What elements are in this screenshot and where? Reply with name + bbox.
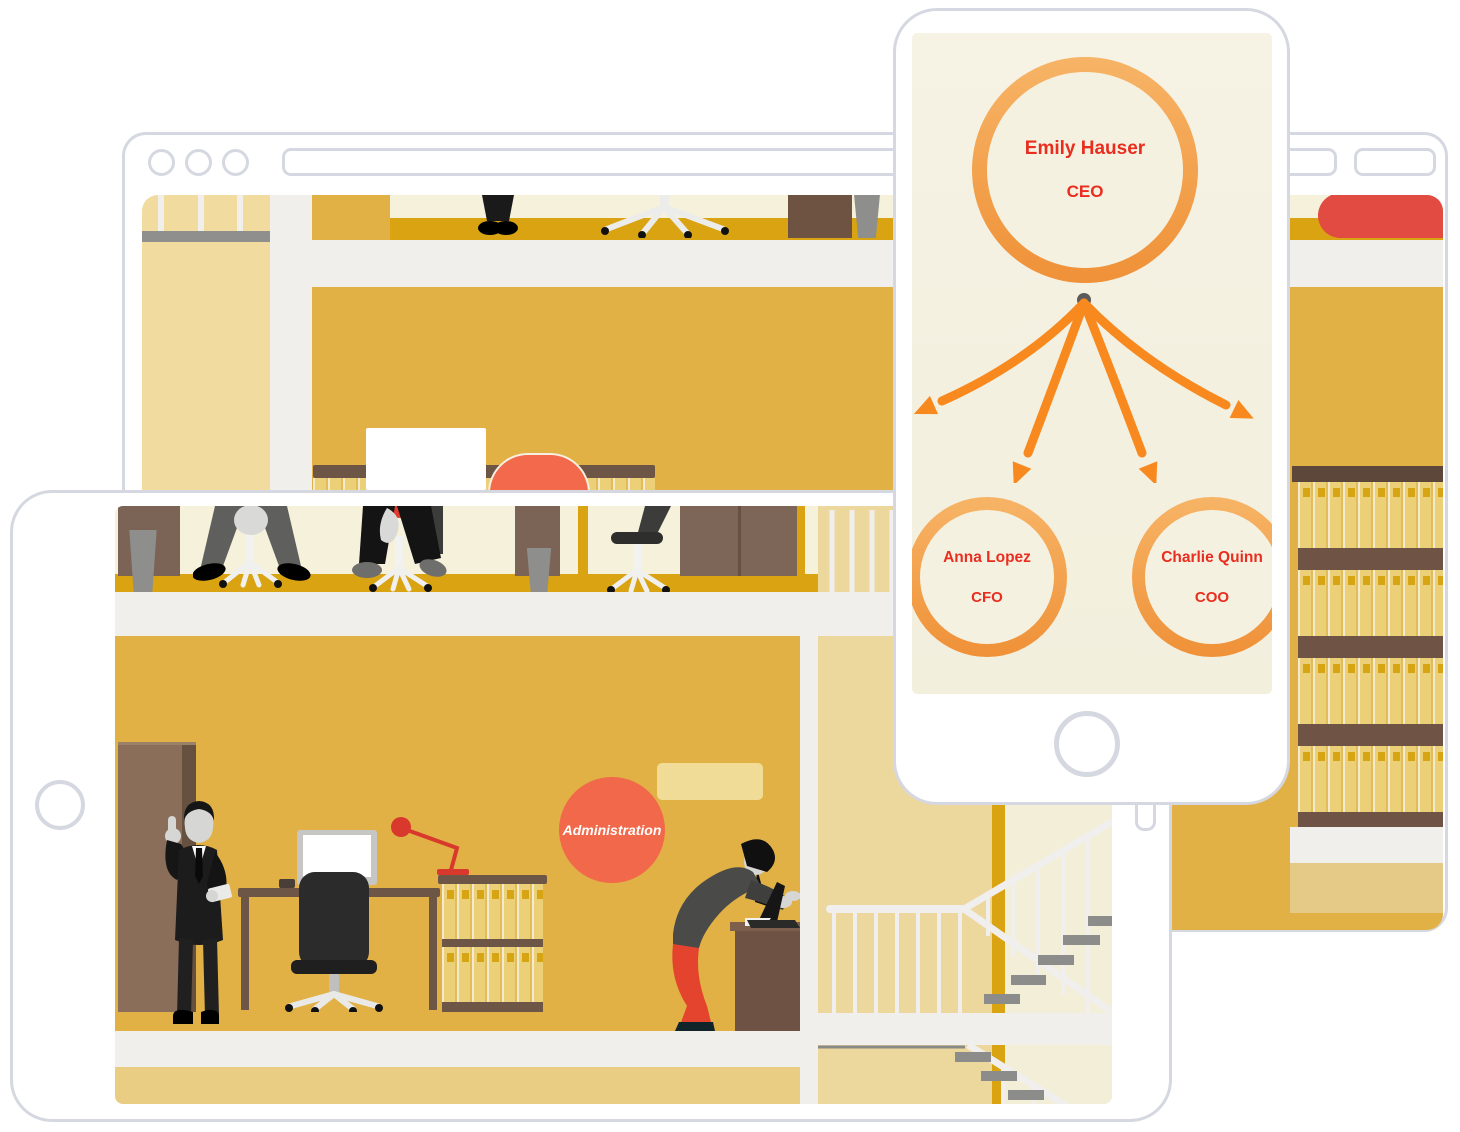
seated-person-gray (193, 506, 318, 594)
org-arrows (912, 293, 1272, 483)
traffic-light-maximize-icon[interactable] (222, 149, 249, 176)
wall-sign (657, 763, 763, 800)
phone-screen: Emily Hauser CEO (912, 33, 1272, 694)
coo-title: COO (1195, 589, 1229, 606)
right-lower-wall (1290, 863, 1443, 913)
coo-name: Charlie Quinn (1161, 549, 1263, 567)
tablet-floor-slab-2 (115, 1031, 818, 1067)
phone-home-button[interactable] (1054, 711, 1120, 777)
standing-man (155, 788, 237, 1025)
gold-trim (797, 506, 805, 576)
task-chair (275, 872, 395, 1012)
browser-toolbar-box[interactable] (1354, 148, 1436, 176)
seated-person-dark (337, 506, 455, 596)
traffic-light-close-icon[interactable] (148, 149, 175, 176)
tablet-lower-wall (115, 1067, 818, 1104)
projection-screen (366, 428, 486, 490)
upper-floor-wall (312, 195, 390, 240)
standing-person-legs (476, 195, 520, 238)
bookshelf-small (438, 875, 547, 1012)
org-node-cfo[interactable]: Anna Lopez CFO (912, 497, 1067, 657)
wall-divider (800, 636, 818, 1104)
cfo-name: Anna Lopez (943, 549, 1031, 567)
laptop (745, 882, 800, 932)
tablet-home-button[interactable] (35, 780, 85, 830)
right-floor-slab (1290, 827, 1443, 863)
org-node-coo[interactable]: Charlie Quinn COO (1132, 497, 1272, 657)
org-node-ceo[interactable]: Emily Hauser CEO (972, 57, 1198, 283)
lectern (730, 922, 805, 1032)
storage-box (788, 195, 852, 238)
gold-divider (578, 506, 588, 576)
traffic-light-minimize-icon[interactable] (185, 149, 212, 176)
cfo-title: CFO (971, 589, 1003, 606)
department-badge-label: Administration (563, 822, 662, 838)
phone-device: Emily Hauser CEO (893, 8, 1290, 805)
elevator-door-bar (142, 231, 270, 242)
wardrobe (680, 506, 800, 576)
ceo-name: Emily Hauser (1025, 138, 1145, 160)
red-sofa (1318, 195, 1443, 238)
desk-lamp (387, 812, 472, 878)
bookshelf-right (1292, 466, 1443, 827)
tablet-floor-slab (115, 592, 818, 636)
stage: Administration (0, 0, 1460, 1132)
empty-desk-chair (593, 506, 688, 596)
department-badge: Administration (559, 777, 665, 883)
ceo-title: CEO (1067, 182, 1104, 202)
office-chair-base (597, 195, 732, 238)
